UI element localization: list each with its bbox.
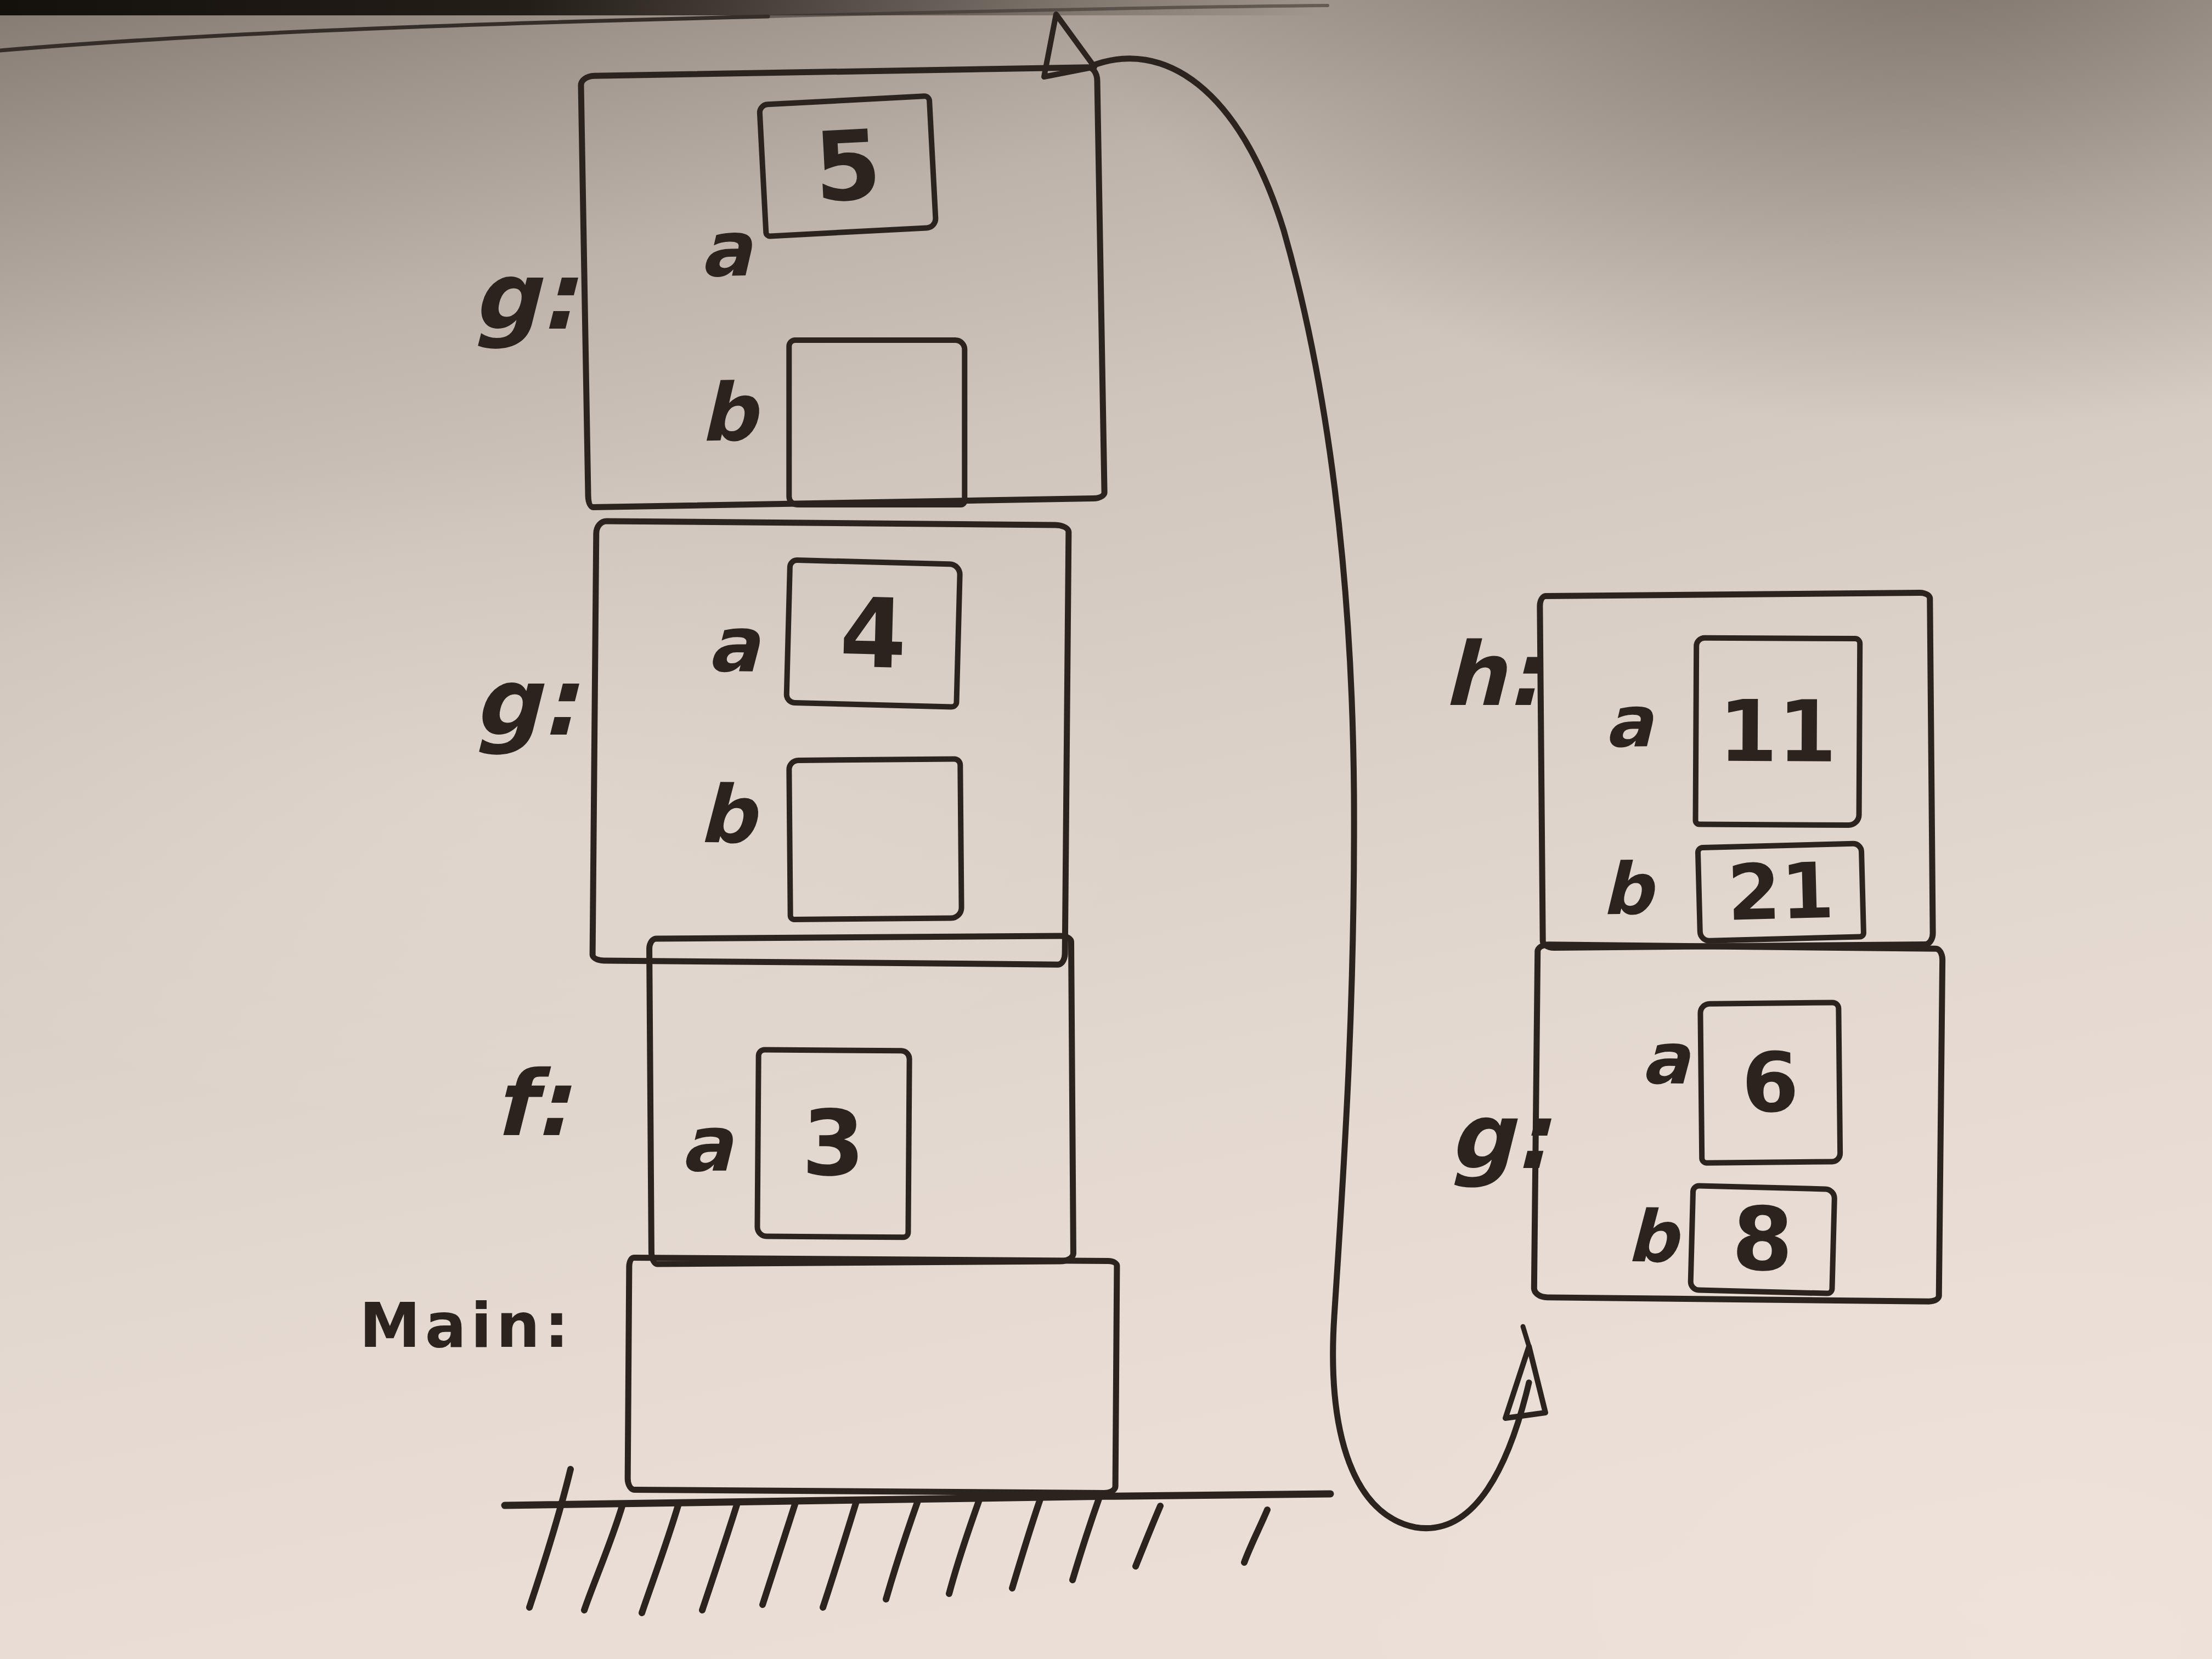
var-letter-b: b [1626, 1201, 1678, 1273]
whiteboard: g: g: f: Main: h: g: a 5 b a 4 b a 3 [0, 0, 2212, 1659]
arrowhead-bottom-icon [1505, 1346, 1545, 1418]
value-a: 11 [1718, 689, 1837, 774]
var-letter-a: a [707, 606, 759, 684]
side-frame-g: a 6 b 8 [1531, 941, 1946, 1305]
value-box-b: 8 [1688, 1183, 1837, 1296]
value-box-b-empty [786, 337, 967, 507]
value-box-a: 6 [1697, 1000, 1843, 1166]
value-box-a: 3 [754, 1047, 912, 1240]
var-letter-a: a [699, 211, 752, 289]
value-b: 21 [1726, 853, 1835, 932]
stack-frame-main [624, 1255, 1120, 1496]
stack-frame-g-top: a 5 b [578, 64, 1108, 510]
side-frame-h: a 11 b 21 [1537, 590, 1936, 951]
stack-frame-label-f: f: [494, 1059, 569, 1149]
value-b: 8 [1731, 1195, 1794, 1284]
value-box-a: 11 [1692, 635, 1863, 828]
var-letter-b: b [1601, 853, 1652, 925]
value-a: 5 [812, 116, 884, 216]
value-box-b-empty [786, 756, 964, 922]
value-box-a: 5 [757, 93, 939, 239]
var-letter-b: b [698, 775, 755, 855]
stack-frame-label-g-mid: g: [473, 656, 577, 749]
var-letter-a: a [680, 1106, 732, 1183]
value-box-b: 21 [1695, 840, 1867, 944]
board-top-edge-line [0, 16, 768, 50]
ground-line [505, 1494, 1330, 1505]
var-letter-a: a [1641, 1023, 1690, 1094]
value-box-a: 4 [783, 557, 963, 710]
board-top-edge-shadow [0, 0, 1317, 15]
value-a: 6 [1741, 1041, 1799, 1124]
stack-frame-f: a 3 [646, 933, 1076, 1267]
var-letter-b: b [699, 373, 757, 453]
arrowhead-bottom-tail [1523, 1327, 1529, 1346]
value-a: 4 [839, 585, 908, 682]
side-frame-label-h: h: [1443, 631, 1541, 719]
value-a: 3 [802, 1098, 865, 1189]
arrow-curve [1092, 59, 1529, 1528]
var-letter-a: a [1604, 686, 1653, 758]
stack-frame-g-mid: a 4 b [589, 518, 1071, 968]
stack-frame-label-g-top: g: [472, 250, 576, 343]
stack-frame-label-main: Main: [359, 1295, 573, 1356]
